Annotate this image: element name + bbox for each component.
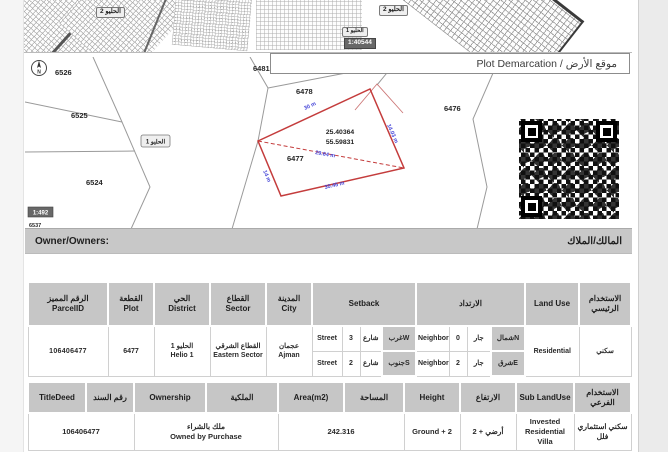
- parcel-label: 6524: [86, 178, 104, 187]
- neighbor-value: 0: [449, 326, 467, 351]
- height-value-ar: أرضي + 2: [460, 413, 516, 451]
- district-chip: الحليو 2: [379, 5, 408, 16]
- col-area-ar-header: المساحة: [344, 382, 404, 413]
- qr-finder-icon: [521, 121, 542, 142]
- qr-code: [516, 116, 622, 222]
- table-header-row: TitleDeed رقم السند Ownership الملكية Ar…: [28, 382, 631, 413]
- dimension-label-right: 14.03 m: [385, 123, 399, 144]
- qr-finder-icon: [596, 121, 617, 142]
- neighbor-direction: شرقE: [491, 351, 525, 376]
- height-value: Ground + 2: [404, 413, 460, 451]
- neighbor-type: Neighbor: [416, 326, 449, 351]
- col-sector-header: القطاعSector: [210, 282, 266, 326]
- table-header-row: الرقم المميزParcelID القطعةPlot الحيDist…: [28, 282, 631, 326]
- col-plot-header: القطعةPlot: [108, 282, 154, 326]
- ownership-value: ملك بالشراءOwned by Purchase: [134, 413, 278, 451]
- sublanduse-value-ar: سكني استثماري فلل: [574, 413, 631, 451]
- setback-direction: غربW: [382, 326, 416, 351]
- col-height-ar-header: الارتفاع: [460, 382, 516, 413]
- parcel-boundary: [232, 57, 268, 229]
- owner-bar: Owner/Owners: المالك/الملاك: [25, 228, 632, 254]
- plot-longitude: 55.59831: [326, 139, 355, 146]
- col-area-header: Area(m2): [278, 382, 344, 413]
- setback-value: 2: [342, 351, 360, 376]
- neighbor-type-ar: جار: [467, 351, 491, 376]
- col-city-header: المدينةCity: [266, 282, 312, 326]
- setback-direction: جنوبS: [382, 351, 416, 376]
- col-sublanduse-ar-header: الاستخدام الفرعي: [574, 382, 631, 413]
- col-parcelid-header: الرقم المميزParcelID: [28, 282, 108, 326]
- landuse-value: Residential: [525, 326, 579, 376]
- owner-label-en: Owner/Owners:: [35, 236, 109, 247]
- table-row: 106406477 6477 الحليو 1Helio 1 القطاع ال…: [28, 326, 631, 351]
- qr-finder-icon: [521, 196, 542, 217]
- sector-value: القطاع الشرقيEastern Sector: [210, 326, 266, 376]
- parcel-label: 6481: [253, 64, 270, 73]
- neighbor-type: Neighbor: [416, 351, 449, 376]
- plot-latitude: 25.40364: [326, 129, 355, 136]
- plot-demarcation-document: الحليو 2 الحليو 2 الحليو 1 1:40544 Plot …: [0, 0, 668, 452]
- district-chip: الحليو 1: [141, 135, 170, 147]
- city-block: [172, 0, 252, 51]
- owner-label-ar: المالك/الملاك: [567, 236, 622, 247]
- plot-number-label: 6477: [287, 154, 304, 163]
- col-district-header: الحيDistrict: [154, 282, 210, 326]
- title-bar: Plot Demarcation / موقع الأرض: [270, 53, 630, 74]
- parcel-label: 6526: [55, 68, 72, 77]
- setback-value: 3: [342, 326, 360, 351]
- page-right-margin: [638, 0, 668, 452]
- city-block: [400, 0, 585, 53]
- col-irtidad-header: الارتداد: [416, 282, 525, 326]
- neighbor-type-ar: جار: [467, 326, 491, 351]
- sublanduse-value: Invested Residential Villa: [516, 413, 574, 451]
- table-row: 106406477 ملك بالشراءOwned by Purchase 2…: [28, 413, 631, 451]
- plot-value: 6477: [108, 326, 154, 376]
- col-titledeed-header: TitleDeed: [28, 382, 86, 413]
- dimension-label-diagonal: 29.64 m: [315, 150, 336, 159]
- svg-text:الحليو 1: الحليو 1: [146, 139, 166, 146]
- svg-text:1:492: 1:492: [33, 211, 49, 217]
- parcel-info-table: الرقم المميزParcelID القطعةPlot الحيDist…: [27, 281, 632, 377]
- title-deed-table: TitleDeed رقم السند Ownership الملكية Ar…: [27, 381, 632, 451]
- parcel-label: 6476: [444, 104, 461, 113]
- overview-map-strip: الحليو 2 الحليو 2 الحليو 1 1:40544: [24, 0, 632, 53]
- city-value: عجمانAjman: [266, 326, 312, 376]
- area-value: 242.316: [278, 413, 404, 451]
- parcel-id-value: 106406477: [28, 326, 108, 376]
- dimension-label-bottom: 30.45 m: [324, 181, 345, 191]
- setback-type: Street: [312, 351, 342, 376]
- col-ownership-ar-header: الملكية: [206, 382, 278, 413]
- col-mainuse-header: الاستخدام الرئيسي: [579, 282, 631, 326]
- col-height-header: Height: [404, 382, 460, 413]
- page-title: Plot Demarcation / موقع الأرض: [476, 58, 617, 70]
- mainuse-value: سكني: [579, 326, 631, 376]
- col-sublanduse-header: Sub LandUse: [516, 382, 574, 413]
- map-scale-badge: 1:492: [28, 207, 53, 217]
- map-scale-badge: 1:40544: [344, 38, 376, 49]
- col-ownership-header: Ownership: [134, 382, 206, 413]
- setback-type: Street: [312, 326, 342, 351]
- dimension-label-top: 30 m: [303, 101, 317, 112]
- district-value: الحليو 1Helio 1: [154, 326, 210, 376]
- compass-icon: N: [32, 61, 47, 76]
- parcel-label: 6478: [296, 87, 313, 96]
- district-chip: الحليو 2: [96, 7, 125, 18]
- setback-type-ar: شارع: [360, 351, 382, 376]
- parcel-boundary: [25, 151, 135, 152]
- district-chip: الحليو 1: [342, 27, 368, 37]
- compass-n-label: N: [37, 70, 41, 76]
- neighbor-direction: شمالN: [491, 326, 525, 351]
- page-left-margin: [0, 0, 24, 452]
- parcel-label: 6525: [71, 111, 88, 120]
- col-setback-header: Setback: [312, 282, 416, 326]
- col-landuse-header: Land Use: [525, 282, 579, 326]
- col-titledeed-ar-header: رقم السند: [86, 382, 134, 413]
- titledeed-value: 106406477: [28, 413, 134, 451]
- setback-type-ar: شارع: [360, 326, 382, 351]
- parcel-boundary: [473, 57, 500, 229]
- neighbor-value: 2: [449, 351, 467, 376]
